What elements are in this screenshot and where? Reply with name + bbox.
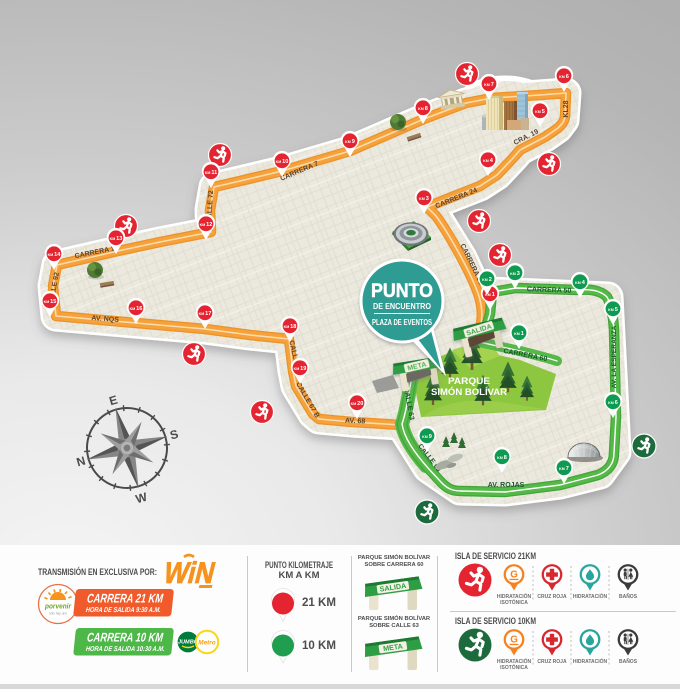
svg-text:G: G (510, 634, 518, 645)
svg-text:ISLA DE SERVICIO 10KM: ISLA DE SERVICIO 10KM (455, 616, 536, 627)
svg-text:PUNTO: PUNTO (371, 281, 433, 302)
svg-text:PARQUE: PARQUE (448, 376, 490, 387)
svg-text:AV. ROJAS: AV. ROJAS (488, 482, 525, 489)
svg-text:SOBRE CARRERA 60: SOBRE CARRERA 60 (364, 562, 423, 568)
svg-text:HIDRATACIÓN: HIDRATACIÓN (573, 657, 608, 665)
svg-text:CARRERA 21 KM: CARRERA 21 KM (86, 592, 164, 606)
svg-text:BAÑOS: BAÑOS (619, 593, 638, 600)
svg-text:G: G (510, 569, 518, 580)
svg-text:SOBRE CALLE 63: SOBRE CALLE 63 (369, 623, 419, 629)
svg-text:10 KM: 10 KM (302, 640, 336, 652)
svg-text:CRUZ ROJA: CRUZ ROJA (537, 594, 567, 600)
svg-text:ISOTÓNICA: ISOTÓNICA (500, 598, 528, 606)
svg-text:CARRERA 10 KM: CARRERA 10 KM (86, 631, 164, 645)
svg-text:BAÑOS: BAÑOS (619, 658, 638, 665)
svg-text:WiN: WiN (160, 556, 218, 589)
svg-text:PARQUE SIMÓN BOLÍVAR: PARQUE SIMÓN BOLÍVAR (358, 553, 431, 561)
svg-text:TRANSMISIÓN EN EXCLUSIVA POR:: TRANSMISIÓN EN EXCLUSIVA POR: (38, 566, 157, 578)
svg-text:CRUZ ROJA: CRUZ ROJA (537, 659, 567, 665)
svg-text:HORA DE SALIDA 9:30 A.M.: HORA DE SALIDA 9:30 A.M. (85, 607, 161, 614)
svg-text:ISOTÓNICA: ISOTÓNICA (500, 663, 528, 671)
svg-text:ISLA DE SERVICIO 21KM: ISLA DE SERVICIO 21KM (455, 551, 536, 562)
svg-text:PLAZA DE EVENTOS: PLAZA DE EVENTOS (372, 318, 432, 327)
svg-text:porvenir: porvenir (44, 602, 72, 611)
svg-text:HIDRATACIÓN: HIDRATACIÓN (573, 592, 608, 600)
svg-text:21 KM: 21 KM (302, 597, 336, 609)
svg-text:HORA DE SALIDA 10:30 A.M.: HORA DE SALIDA 10:30 A.M. (85, 646, 165, 653)
svg-text:HIDRATACIÓN: HIDRATACIÓN (497, 657, 532, 665)
svg-text:DE ENCUENTRO: DE ENCUENTRO (373, 301, 431, 311)
svg-text:PARQUE SIMÓN BOLÍVAR: PARQUE SIMÓN BOLÍVAR (358, 614, 431, 622)
svg-text:KL28: KL28 (563, 100, 570, 117)
svg-text:W: W (134, 490, 149, 507)
svg-text:Metro: Metro (198, 640, 215, 647)
svg-text:sólo hay uno: sólo hay uno (49, 612, 67, 616)
svg-text:AV. LA ESPERANZA: AV. LA ESPERANZA (611, 325, 618, 388)
svg-text:E: E (108, 393, 120, 409)
svg-text:SIMÓN BOLÍVAR: SIMÓN BOLÍVAR (431, 386, 507, 398)
svg-text:HIDRATACIÓN: HIDRATACIÓN (497, 592, 532, 600)
svg-text:AV. 68: AV. 68 (345, 418, 366, 426)
svg-text:KM A KM: KM A KM (279, 570, 320, 581)
svg-text:N: N (75, 453, 87, 469)
svg-text:S: S (168, 427, 180, 443)
